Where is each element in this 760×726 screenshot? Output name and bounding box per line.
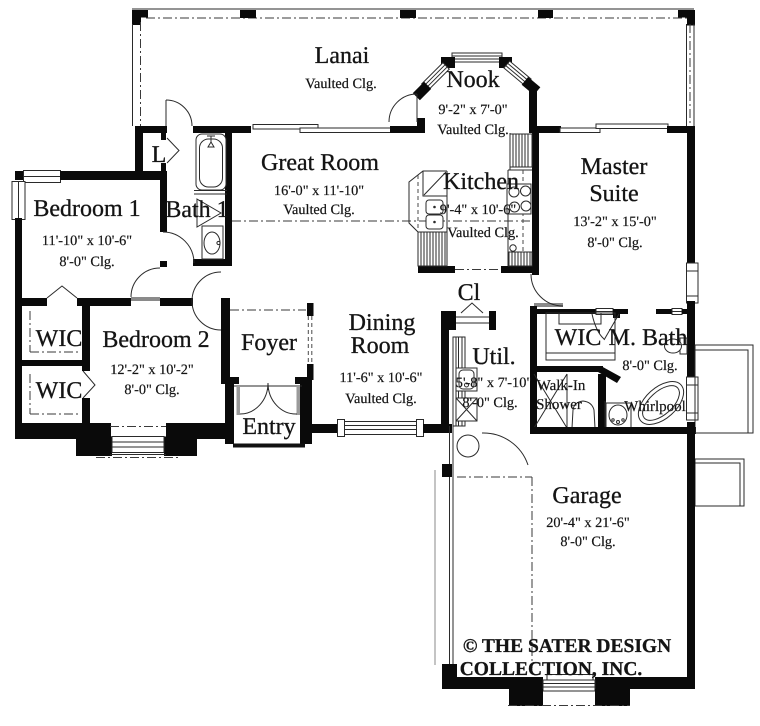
svg-text:Great Room: Great Room [261,150,379,176]
svg-text:20'-4" x 21'-6": 20'-4" x 21'-6" [546,515,630,531]
svg-text:Cl: Cl [458,280,481,306]
svg-text:Vaulted Clg.: Vaulted Clg. [447,225,518,241]
svg-text:11'-6" x 10'-6": 11'-6" x 10'-6" [339,370,422,386]
svg-text:COLLECTION, INC.: COLLECTION, INC. [460,659,643,680]
svg-text:Bedroom 1: Bedroom 1 [33,196,140,222]
svg-text:Entry: Entry [242,414,295,440]
svg-text:M. Bath: M. Bath [609,325,688,351]
svg-text:11'-10" x 10'-6": 11'-10" x 10'-6" [42,233,132,249]
svg-text:Master: Master [581,154,648,180]
svg-text:9'-2" x 7'-0": 9'-2" x 7'-0" [438,102,507,118]
svg-text:Bath 1: Bath 1 [165,197,228,223]
svg-text:Shower: Shower [536,397,582,413]
svg-text:9'-4" x 10'-6": 9'-4" x 10'-6" [440,202,516,218]
svg-text:12'-2" x 10'-2": 12'-2" x 10'-2" [110,362,194,378]
svg-text:Room: Room [351,333,410,359]
svg-text:Nook: Nook [446,67,499,93]
svg-text:Util.: Util. [472,344,515,370]
svg-text:WIC: WIC [36,326,83,352]
svg-text:8'-0" Clg.: 8'-0" Clg. [462,395,517,411]
svg-text:16'-0" x 11'-10": 16'-0" x 11'-10" [274,183,364,199]
svg-text:Vaulted Clg.: Vaulted Clg. [345,391,416,407]
svg-text:Kitchen: Kitchen [443,169,519,195]
svg-text:8'-0" Clg.: 8'-0" Clg. [560,534,615,550]
svg-text:13'-2" x 15'-0": 13'-2" x 15'-0" [573,214,657,230]
svg-text:Lanai: Lanai [315,43,370,69]
svg-text:Vaulted Clg.: Vaulted Clg. [437,122,508,138]
svg-text:8'-0" Clg.: 8'-0" Clg. [622,358,677,374]
svg-text:WIC: WIC [36,378,83,404]
svg-text:Bedroom 2: Bedroom 2 [102,327,209,353]
svg-text:Vaulted Clg.: Vaulted Clg. [283,202,354,218]
svg-text:8'-0" Clg.: 8'-0" Clg. [59,254,114,270]
svg-text:Foyer: Foyer [241,330,297,356]
svg-text:Suite: Suite [589,181,638,207]
svg-text:Whirlpool: Whirlpool [624,399,686,415]
svg-text:© THE SATER DESIGN: © THE SATER DESIGN [463,636,671,657]
svg-text:L: L [152,142,167,168]
svg-text:8'-0" Clg.: 8'-0" Clg. [587,235,642,251]
svg-text:Vaulted Clg.: Vaulted Clg. [305,76,376,92]
svg-text:WIC: WIC [555,325,602,351]
svg-text:Garage: Garage [552,483,621,509]
svg-text:5'-8" x 7'-10": 5'-8" x 7'-10" [456,375,532,391]
svg-text:Walk-In: Walk-In [537,378,586,394]
svg-text:8'-0" Clg.: 8'-0" Clg. [124,382,179,398]
